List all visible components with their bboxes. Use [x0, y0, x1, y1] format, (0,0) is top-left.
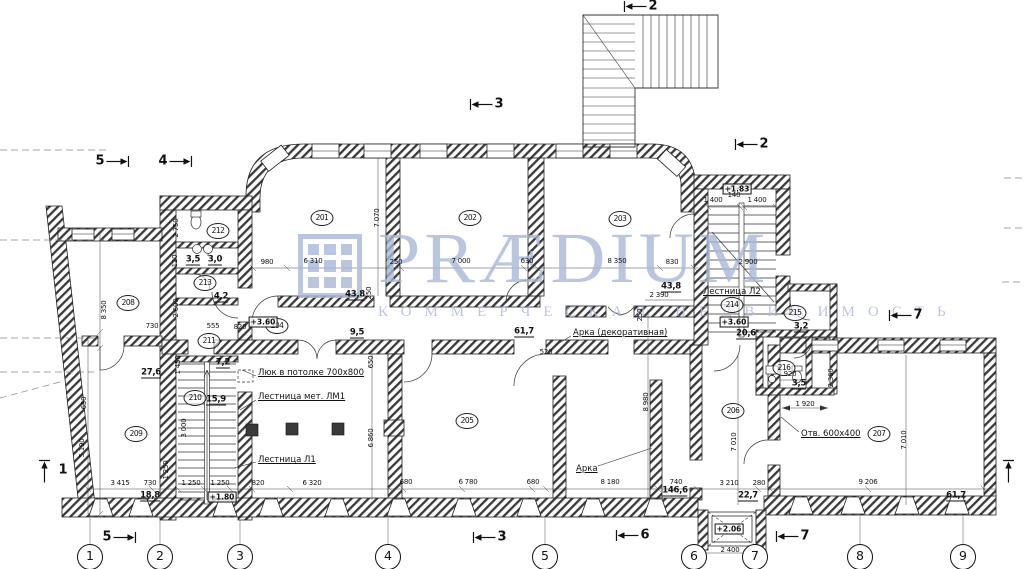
- stair-L2: [708, 203, 776, 337]
- floorplan-drawing: [0, 0, 1024, 569]
- adjacent-structure-lines: [0, 150, 1022, 398]
- grid-leaders: [90, 516, 963, 550]
- floorplan-page: PRÆDIUM КОММЕРЧЕСКАЯ НЕДВИЖИМОСТЬ 201202…: [0, 0, 1024, 569]
- entrance-vestibule: [708, 512, 756, 546]
- columns: [246, 423, 344, 436]
- stair-L1: [178, 362, 236, 504]
- exterior-stair: [583, 15, 718, 147]
- leader-lines: [234, 336, 799, 468]
